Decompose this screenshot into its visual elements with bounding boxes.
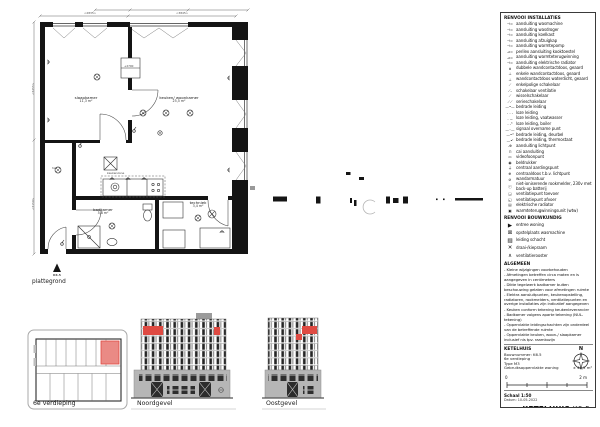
legend-symbol-icon: ⟋ (504, 83, 516, 87)
overview-plan (28, 330, 127, 409)
project-info: N KETELHUIS Bouwnummer: K6.5 6e verdiepi… (504, 344, 593, 371)
overview-label: 6e verdieping (33, 400, 76, 407)
legend-symbol-icon: —•ᵗ (504, 139, 516, 143)
context-fragments (250, 172, 483, 214)
highlighted-unit (101, 341, 119, 364)
kitchen-zone-label: keukenzone (107, 171, 124, 175)
legend-symbol-icon: ⊣= (504, 39, 516, 43)
legend-symbol-icon: ◉ (504, 161, 516, 165)
legend-symbol-icon: ⊿= (504, 56, 516, 60)
legend-symbol-icon: - -ᵇ (504, 122, 516, 126)
legend-item-label: wisselschakelaar (516, 94, 548, 99)
legend-item-label: draai-/kiepraam (516, 246, 547, 251)
elevation-north (131, 313, 236, 409)
plan-title: plattegrond (32, 279, 66, 285)
legend-symbol-icon: ⊣= (504, 61, 516, 65)
east-elevation-label: Oostgevel (266, 400, 297, 407)
compass-icon (572, 352, 590, 370)
legend-symbol-icon: ⟋⟋ (504, 100, 516, 104)
room-badkamer: badkamer 5,8 m² (93, 208, 113, 216)
general-note: - Afmetingen betreffen circa maten en is… (504, 273, 593, 282)
legend-item: ▶ entree woning (504, 222, 593, 230)
legend-symbol-icon: ◱ (504, 198, 516, 202)
legend-symbol-icon: ▨ (504, 239, 516, 243)
legend-item-label: aansluiting wasmachine (516, 22, 563, 27)
dimension-lines (33, 9, 250, 256)
legend-bouwkundig-list: ▶ entree woning ⊠ opstelplaats wasmachin… (504, 222, 593, 260)
dim-left-upper: <3255> (31, 83, 35, 95)
general-note: - Elektra aansluitpunten, keukenopstelli… (504, 293, 593, 307)
legend-symbol-icon: ⊥ (504, 78, 516, 82)
legend-item: ▨ leiding schacht (504, 237, 593, 245)
kitchen-counter (101, 176, 165, 197)
title-block: Schaal 1:50 Datum: 10-05-2022 KETELHUIS … (504, 390, 593, 408)
general-note: - Oppervlakte keuken, woon-/ slaapkamer … (504, 333, 593, 342)
gbo-label: Gebruiksoppervlakte woning (504, 366, 559, 371)
legend-symbol-icon: ⊥ (504, 72, 516, 76)
legend-installaties-list: ⊣= aansluiting wasmachine ⊣= aansluiting… (504, 22, 593, 214)
legend-symbol-icon: - - - (504, 111, 516, 115)
legend-symbol-icon: —•ᵈ (504, 133, 516, 137)
legend-item-label: entree woning (516, 223, 544, 228)
legend-symbol-icon: ⊣= (504, 33, 516, 37)
scale-end: 2 m (579, 375, 587, 380)
legend-symbol-icon: ⊘ (504, 178, 516, 182)
north-compass: N (571, 347, 591, 374)
legend-symbol-icon: ⊠ (504, 231, 516, 235)
legend-symbol-icon: ⏚ (504, 166, 516, 170)
legend-symbol-icon: ∧ (504, 254, 516, 258)
legend-symbol-icon: ⋔ (504, 67, 516, 71)
legend-symbol-icon: ⊓ (504, 150, 516, 154)
room-hal: hal (52, 166, 57, 170)
room-woonkamer: keuken/ woonkamer 25,5 m² (159, 96, 198, 104)
elevation-east (262, 318, 326, 409)
interior-walls (45, 27, 236, 249)
entrance-code: K6.5 (53, 273, 61, 277)
legend-item: ∧ ventilatierooster (504, 252, 593, 260)
drawing-sheet: <2835> <3845> <3255> <3150> slaapkamer 1… (0, 0, 600, 427)
legend-symbol-icon: ▤ (504, 203, 516, 207)
legend-panel: RENVOOI INSTALLATIES ⊣= aansluiting wasm… (500, 12, 596, 408)
dim-left-lower: <3150> (31, 198, 35, 210)
scale-bar-icon (505, 381, 593, 389)
scale-bar: 0 2 m (504, 375, 593, 389)
legend-symbol-icon: ⊕ (504, 172, 516, 176)
legend-symbol-icon: —◦— (504, 128, 516, 132)
legend-item-label: leiding schacht (516, 238, 545, 243)
legend-symbol-icon: ⊣= (504, 28, 516, 32)
scale-start: 0 (505, 375, 508, 380)
legend-symbol-icon: ⊣= (504, 22, 516, 26)
legend-item-label: elektrische radiator (516, 203, 554, 208)
date-text: Datum: 10-05-2022 (504, 398, 593, 402)
legend-item-label: videofoonpunt (516, 155, 544, 160)
legend-symbol-icon: ⟋ (504, 94, 516, 98)
washing-machine-spot (104, 157, 117, 170)
highlighted-unit-north (143, 326, 163, 335)
legend-item: ⊠ opstelplaats wasmachine (504, 229, 593, 237)
legend-algemeen-list: - Kleine wijzigingen voorbehouden - Afme… (504, 268, 593, 343)
legend-symbol-icon: -⊕ (504, 144, 516, 148)
general-note: - Oppervlakte leidingschachten zijn onde… (504, 323, 593, 332)
legend-symbol-icon: ▣ (504, 209, 516, 213)
legend-item-label: enkelpolige schakelaar (516, 83, 560, 88)
legend-symbol-icon: ⊿= (504, 50, 516, 54)
sheet-title-name: KETELHUIS (522, 404, 570, 408)
legend-symbol-icon: ▭ (504, 155, 516, 159)
room-techniek: techniek 3,4 m² (190, 201, 207, 209)
dim-top-right: <3845> (176, 11, 188, 15)
dim-top-left: <2835> (84, 11, 96, 15)
sheet-title-unit: K6.5 (573, 404, 590, 408)
entrance-arrow (53, 264, 61, 273)
sheet-title: KETELHUIS K6.5 (504, 404, 593, 408)
legend-symbol-icon: ▶ (504, 224, 516, 228)
legend-item: ✕ draai-/kiepraam (504, 245, 593, 253)
highlighted-unit-east (302, 326, 317, 334)
legend-item-label: aansluiting lichtpunt (516, 144, 555, 149)
legend-symbol-icon: ⊣= (504, 44, 516, 48)
legend-item-label: opstelplaats wasmachine (516, 231, 565, 236)
legend-symbol-icon: ⓡ (504, 185, 516, 189)
legend-item-label: aansluiting koelkast (516, 33, 554, 38)
legend-item-label: warmteterugwinningsunit (wtw) (516, 209, 578, 214)
general-note: - Badkamer volgens aparte tekening (NUL-… (504, 313, 593, 322)
legend-symbol-icon: —•— (504, 105, 516, 109)
floor-plan (33, 9, 250, 273)
legend-symbol-icon: ◲ (504, 192, 516, 196)
general-note: - Dikte tegelwerk badkamer buiten bescho… (504, 283, 593, 292)
ceiling-level-label: +2700 (124, 64, 133, 68)
legend-item-label: ventilatierooster (516, 254, 548, 259)
outer-walls (40, 22, 248, 254)
legend-item: ▣ warmteterugwinningsunit (wtw) (504, 208, 593, 214)
legend-symbol-icon: - -ᵥ (504, 117, 516, 121)
legend-item-label: ventilatiepunt toevoer (516, 192, 559, 197)
legend-symbol-icon: ✕ (504, 246, 516, 250)
legend-symbol-icon: ⟋ᵥ (504, 89, 516, 93)
north-elevation-label: Noordgevel (137, 400, 172, 407)
room-slaapkamer: slaapkamer 11,3 m² (75, 96, 98, 104)
